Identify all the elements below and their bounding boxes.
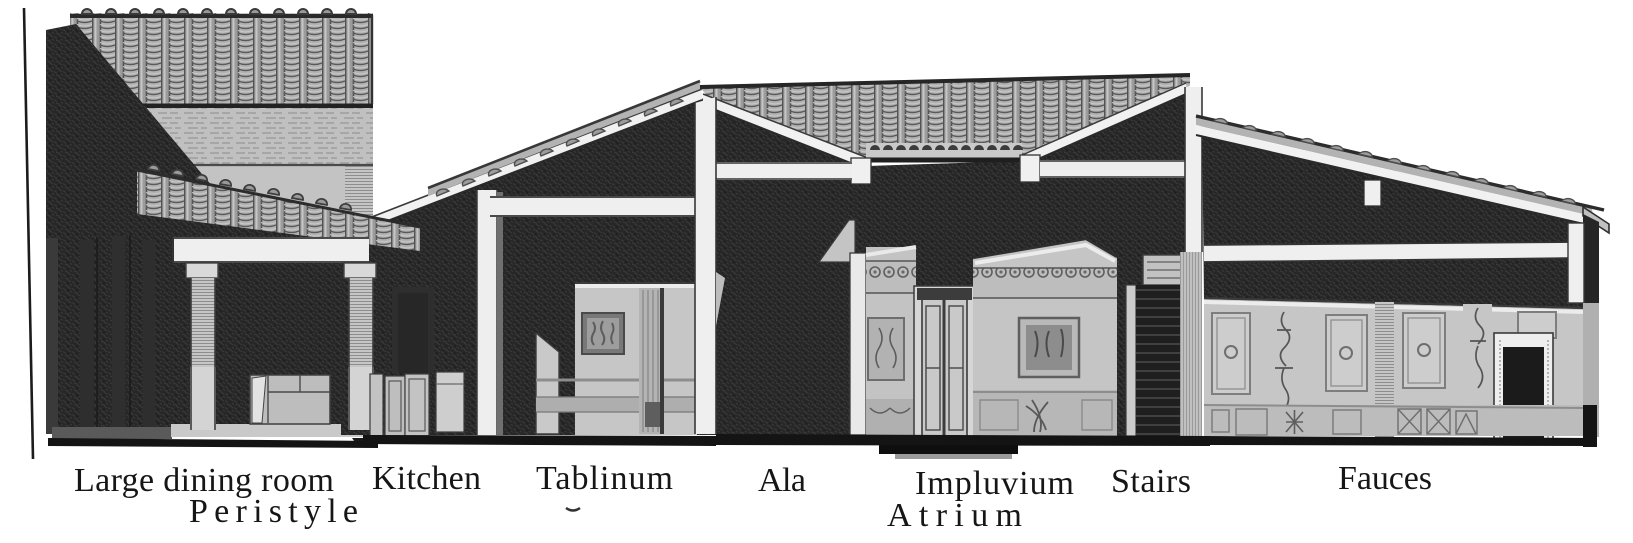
svg-text:Kitchen: Kitchen [372, 460, 481, 497]
svg-text:Peristyle: Peristyle [189, 493, 358, 530]
svg-text:Atrium: Atrium [887, 497, 1022, 534]
svg-text:Fauces: Fauces [1338, 460, 1432, 497]
svg-text:Tablinum: Tablinum [536, 460, 673, 497]
svg-text:Ala: Ala [758, 462, 806, 499]
svg-text:Stairs: Stairs [1111, 463, 1191, 500]
